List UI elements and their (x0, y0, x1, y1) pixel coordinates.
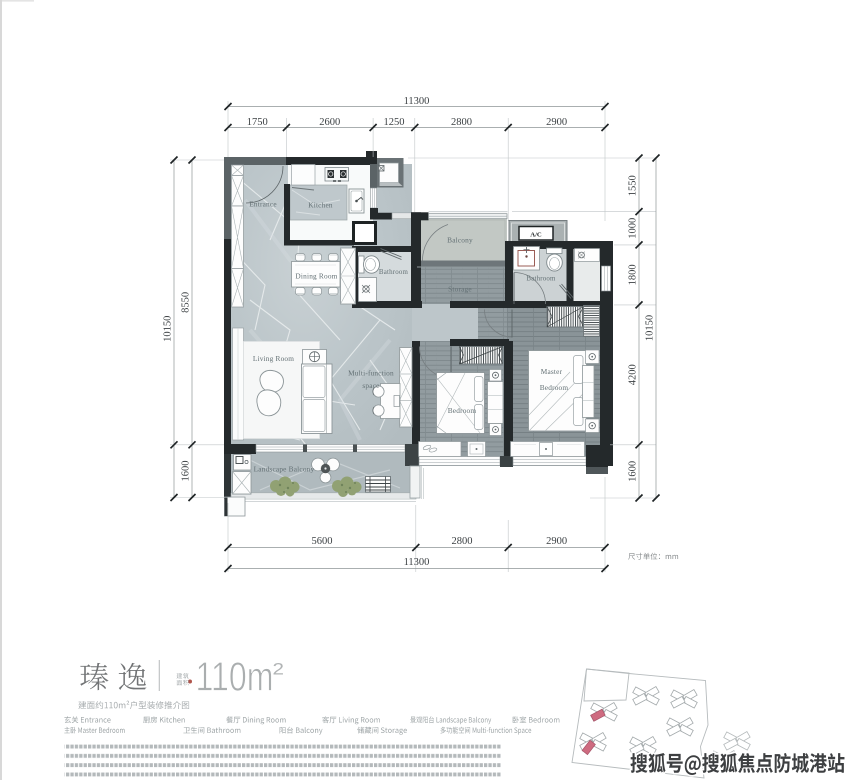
svg-text:2600: 2600 (319, 117, 340, 128)
svg-text:5600: 5600 (312, 536, 333, 547)
svg-text:1550: 1550 (628, 175, 639, 196)
svg-text:Bedroom: Bedroom (448, 406, 477, 415)
svg-text:11300: 11300 (404, 557, 430, 568)
svg-text:space: space (362, 381, 379, 390)
svg-text:Living Room: Living Room (253, 354, 294, 363)
svg-text:Bedroom: Bedroom (540, 383, 569, 392)
svg-text:1800: 1800 (628, 264, 639, 285)
svg-text:Bathroom: Bathroom (379, 269, 409, 276)
svg-text:Storage: Storage (448, 285, 472, 294)
svg-text:2900: 2900 (546, 536, 567, 547)
svg-text:1250: 1250 (384, 117, 405, 128)
svg-text:Dining Room: Dining Room (295, 272, 337, 281)
svg-text:1600: 1600 (628, 461, 639, 482)
svg-text:1000: 1000 (628, 218, 639, 239)
svg-text:2800: 2800 (451, 117, 472, 128)
svg-text:11300: 11300 (404, 96, 430, 107)
svg-text:8550: 8550 (181, 292, 192, 313)
svg-text:A/C: A/C (530, 232, 542, 239)
svg-text:Master: Master (541, 367, 563, 376)
svg-text:Multi-function: Multi-function (348, 369, 394, 378)
svg-text:110m: 110m (196, 654, 274, 700)
svg-text:Entrance: Entrance (249, 200, 277, 209)
svg-text:Balcony: Balcony (447, 236, 473, 245)
svg-text:2900: 2900 (546, 117, 567, 128)
svg-text:4200: 4200 (628, 364, 639, 385)
svg-text:Landscape Balcony: Landscape Balcony (254, 465, 315, 474)
svg-text:10150: 10150 (163, 316, 174, 342)
svg-text:2800: 2800 (452, 536, 473, 547)
svg-text:1600: 1600 (181, 461, 192, 482)
svg-text:Kitchen: Kitchen (308, 201, 333, 210)
svg-text:1750: 1750 (247, 117, 268, 128)
svg-text:2: 2 (273, 660, 285, 679)
svg-text:10150: 10150 (645, 315, 656, 341)
svg-text:Bathroom: Bathroom (526, 276, 556, 283)
